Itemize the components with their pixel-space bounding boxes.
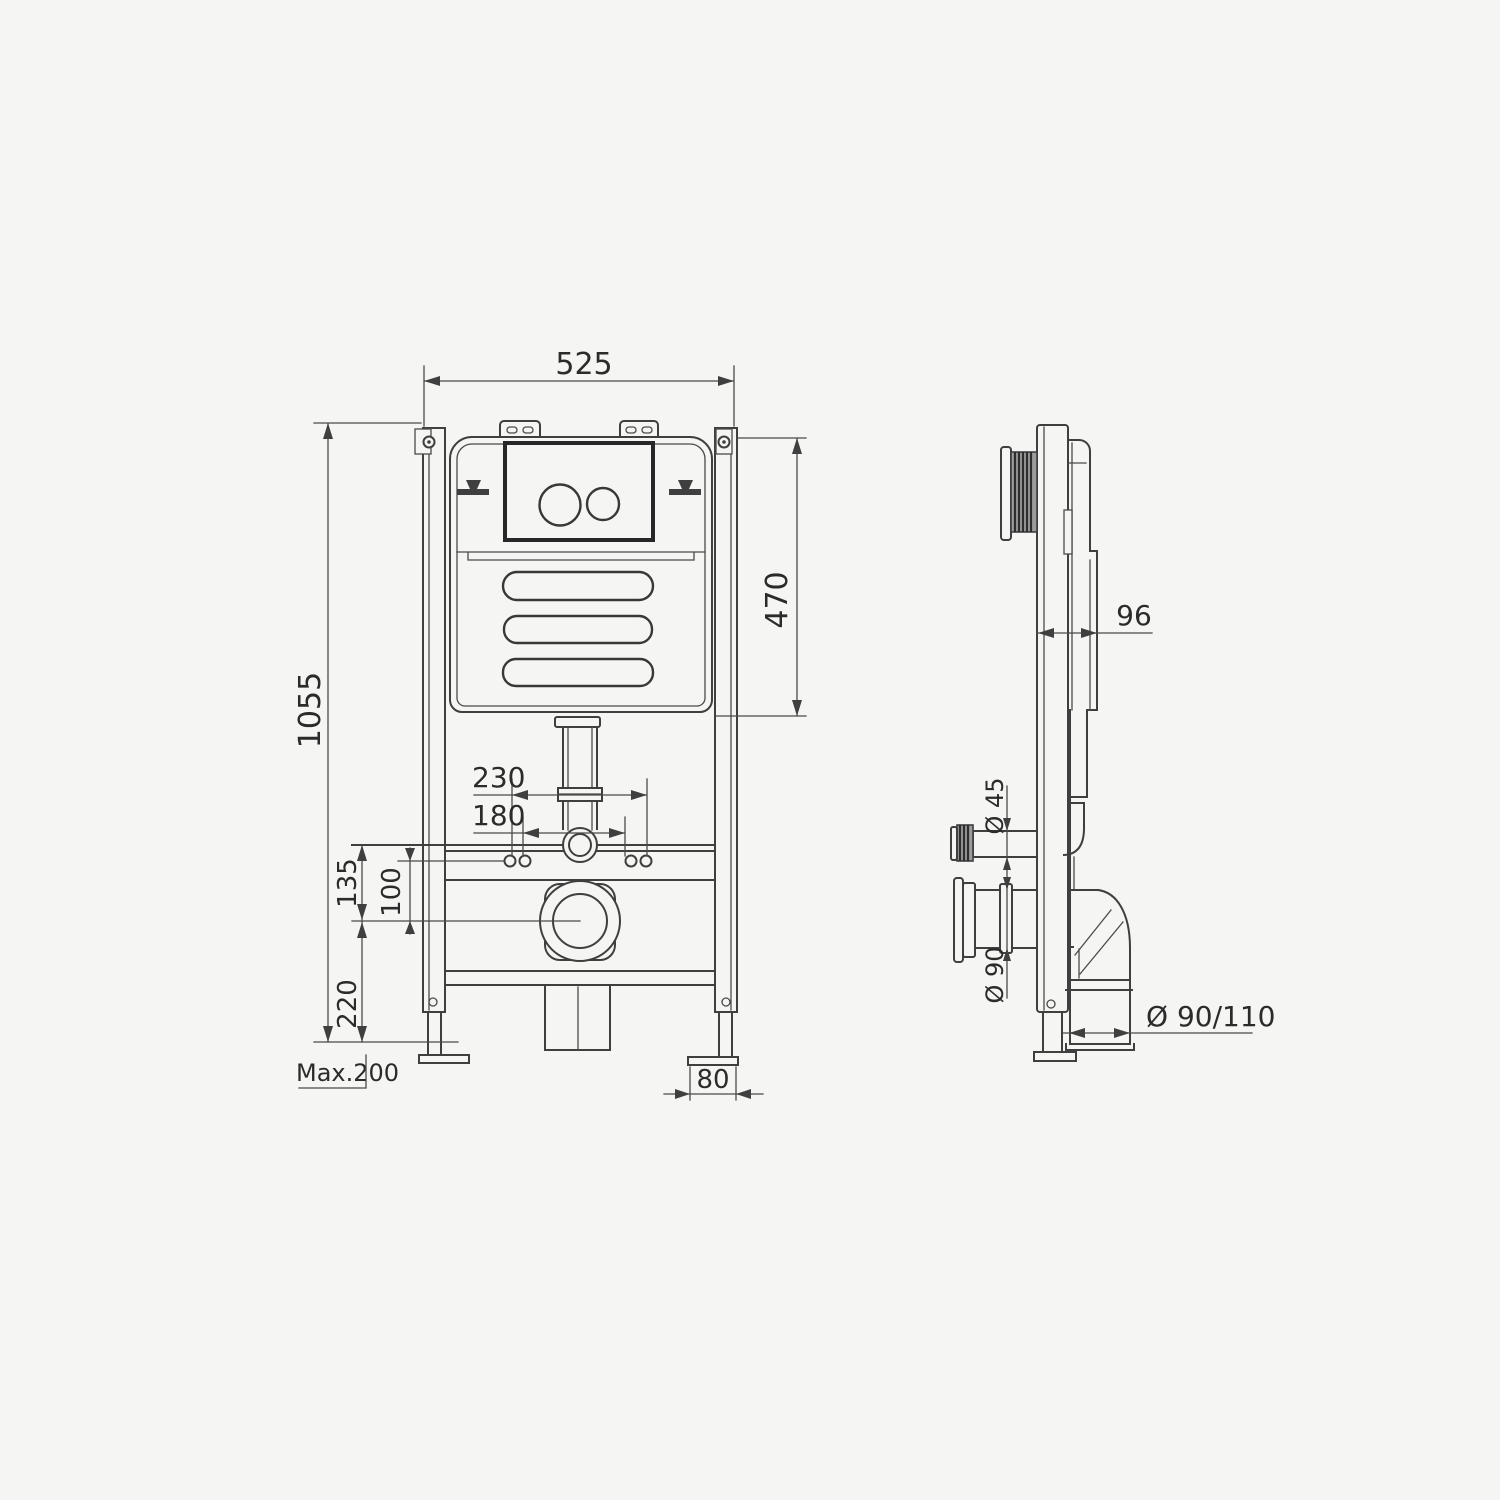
- side-foot-plate: [1034, 1052, 1076, 1061]
- frame-depth-label: 96: [1116, 599, 1152, 632]
- flush-button-small: [587, 488, 619, 520]
- dim-outlet-to-floor: 220: [333, 922, 367, 1042]
- cistern-slots: [503, 572, 653, 686]
- outlet-connector-diameter-label: Ø 90: [981, 946, 1009, 1003]
- frame-height-label: 1055: [293, 672, 328, 748]
- dim-frame-height: 1055: [293, 423, 421, 1042]
- bolts-inner-label: 180: [472, 799, 525, 832]
- feet: [314, 1012, 738, 1065]
- foot-plate-right: [688, 1057, 738, 1065]
- bottom-rail: [445, 971, 715, 985]
- flush-plate: [505, 443, 653, 540]
- flush-button-large: [540, 485, 581, 526]
- installation-frame-technical-drawing: 525: [0, 0, 1500, 1500]
- outlet-to-floor-label: 220: [333, 979, 363, 1029]
- dim-foot-plate-width: 80: [664, 1065, 763, 1100]
- dim-foot-adjustment: Max.200: [296, 1055, 399, 1088]
- waste-duct: [545, 987, 610, 1050]
- bolts-to-outlet-label: 100: [377, 867, 407, 917]
- foot-adjustment-label: Max.200: [296, 1059, 399, 1087]
- drawing-canvas: 525: [0, 0, 1500, 1500]
- front-view: 525: [293, 347, 806, 1100]
- bolts-outer-label: 230: [472, 761, 525, 794]
- waste-elbow-diameter-label: Ø 90/110: [1146, 1000, 1275, 1033]
- waste-elbow: [1066, 890, 1134, 1050]
- cistern-body: [450, 437, 712, 712]
- rail-to-outlet-label: 135: [333, 858, 363, 908]
- side-view: 96 Ø 45 Ø 90 Ø 90/110: [951, 425, 1275, 1061]
- dim-frame-width: 525: [424, 347, 734, 426]
- dim-bolts-inner: 180: [472, 799, 625, 856]
- flush-pipe: [555, 717, 602, 830]
- dim-waste-elbow-diameter: Ø 90/110: [1063, 1000, 1275, 1038]
- frame-width-label: 525: [555, 347, 612, 382]
- dim-rail-to-outlet: 135: [333, 845, 367, 920]
- foot-plate-width-label: 80: [696, 1065, 729, 1095]
- flush-pipe-diameter-label: Ø 45: [981, 777, 1009, 834]
- cistern-height-label: 470: [760, 571, 795, 628]
- flush-plate-access-shaft: [1001, 447, 1037, 540]
- foot-plate-left: [419, 1055, 469, 1063]
